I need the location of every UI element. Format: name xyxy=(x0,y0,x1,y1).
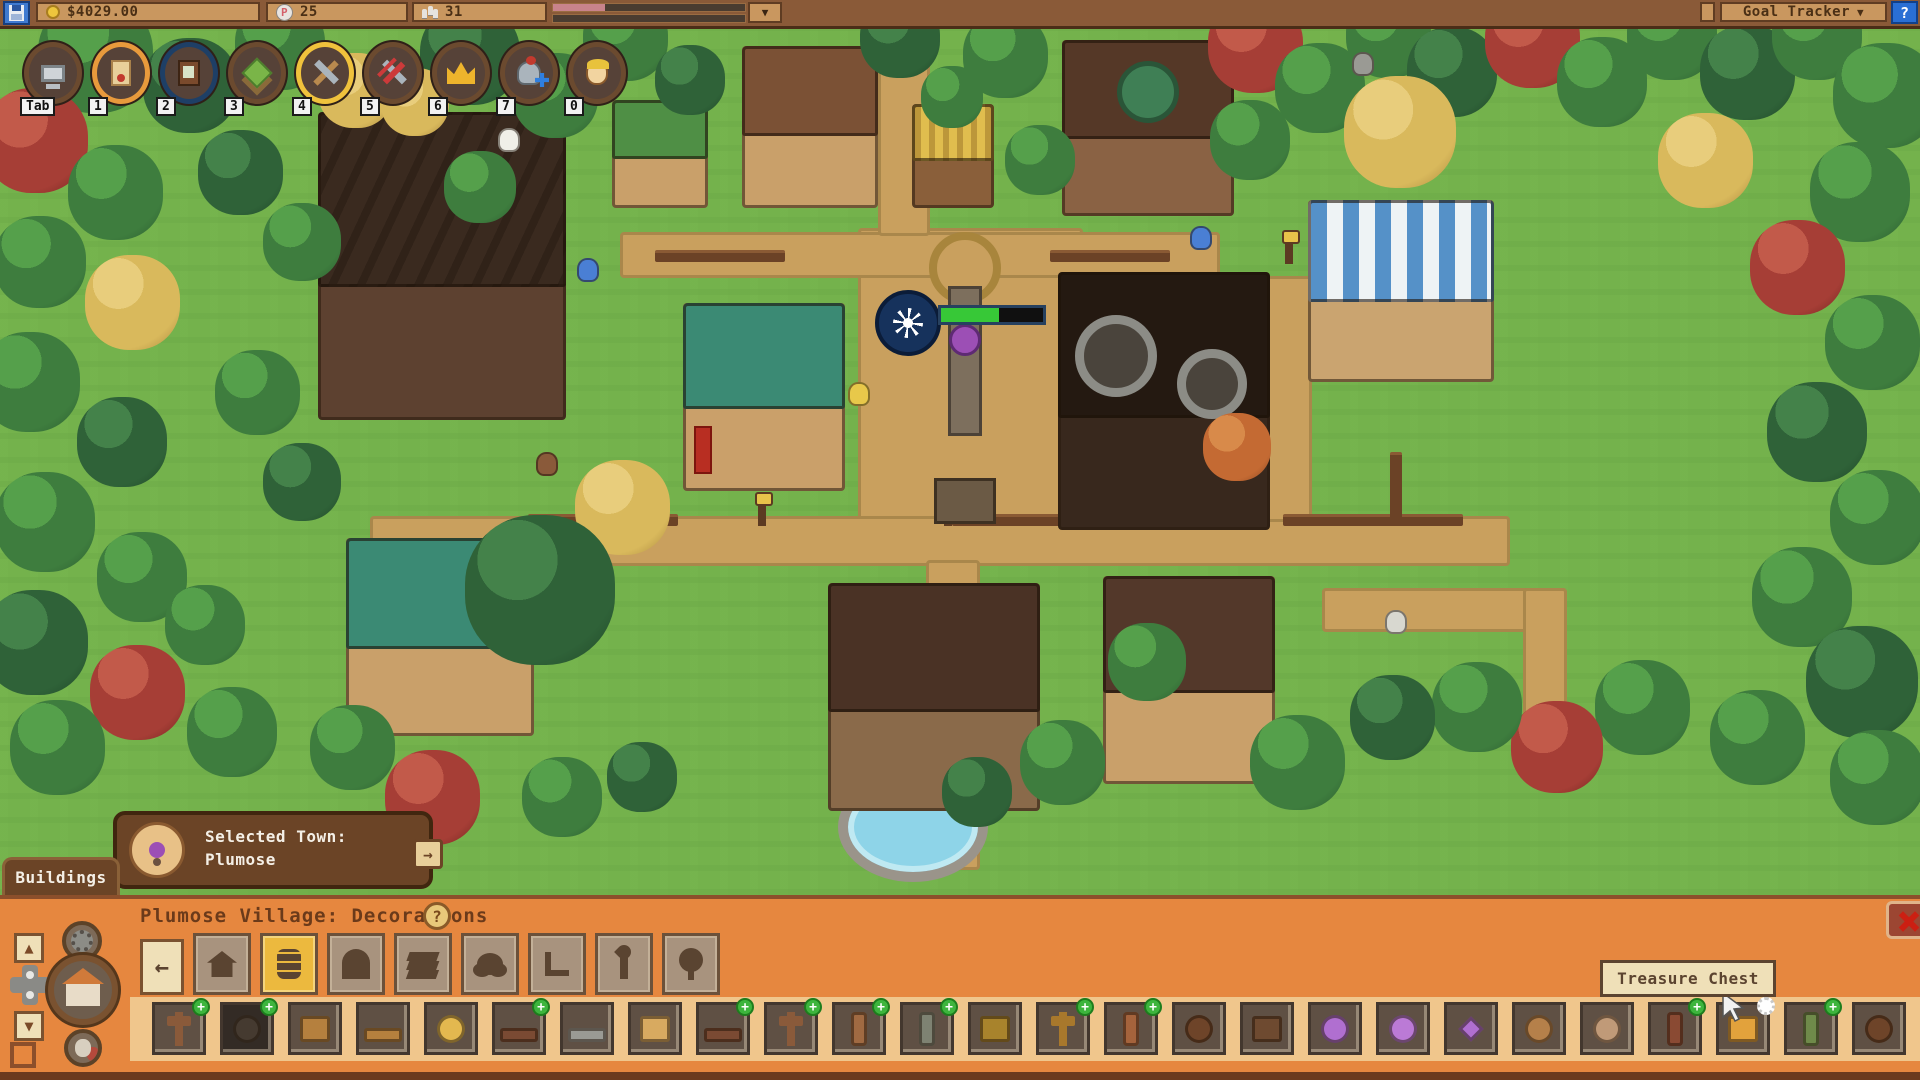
hotbar-slot-1[interactable]: 1 xyxy=(92,42,153,108)
blue-slime-2[interactable] xyxy=(1190,226,1212,250)
signpost-arm-icon xyxy=(787,1012,795,1046)
lantern-shop[interactable] xyxy=(683,303,845,491)
hotbar-slot-4[interactable]: 4 xyxy=(296,42,357,108)
hotbar-slot-5[interactable]: 5 xyxy=(364,42,425,108)
sign-board-icon xyxy=(980,1016,1010,1042)
blue-slime-1[interactable] xyxy=(577,258,599,282)
tools-icon xyxy=(310,58,340,88)
item-slot-wooden-bench[interactable]: + xyxy=(492,1002,546,1055)
crystal-cluster-icon xyxy=(1458,1016,1483,1041)
amethyst-orb-icon xyxy=(1389,1015,1417,1043)
caret-down-icon: ▼ xyxy=(1857,6,1864,19)
tree xyxy=(1005,125,1075,195)
hotbar-slot-0[interactable]: 0 xyxy=(568,42,629,108)
tailor-shop[interactable] xyxy=(742,46,878,208)
plus-badge: + xyxy=(736,998,754,1016)
selected-town-text: Selected Town: Plumose xyxy=(205,825,347,871)
player-marker[interactable] xyxy=(875,290,941,356)
tree xyxy=(921,66,983,128)
town-shrine[interactable] xyxy=(928,232,1002,524)
mood-meter-track-bottom xyxy=(552,14,746,23)
category-next-villagers[interactable] xyxy=(64,1029,102,1067)
hotbar-circle xyxy=(160,42,218,104)
hotbar-circle xyxy=(92,42,150,104)
hotbar-key-label: 5 xyxy=(360,97,380,116)
armor-icon xyxy=(517,61,541,85)
money-value: $4029.00 xyxy=(67,4,138,20)
stone-statue[interactable] xyxy=(1352,52,1374,76)
fence xyxy=(1283,514,1463,526)
tree xyxy=(198,130,283,215)
scroll-up-button[interactable]: ▲ xyxy=(14,933,44,963)
onsen-house-roof xyxy=(828,583,1040,712)
tree-icon xyxy=(679,948,703,972)
tree xyxy=(1750,220,1845,315)
tree xyxy=(1350,675,1435,760)
population-value: 31 xyxy=(445,4,463,20)
wooden-box-icon xyxy=(300,1016,330,1042)
hotbar-key-label: Tab xyxy=(20,97,55,116)
item-slot-mossy-pillar[interactable]: + xyxy=(900,1002,954,1055)
mood-meter xyxy=(552,3,746,24)
hotbar-circle xyxy=(364,42,422,104)
category-current-buildings[interactable] xyxy=(48,955,118,1025)
tall-signpost-icon xyxy=(1059,1012,1067,1046)
tree xyxy=(444,151,516,223)
charm-totem-icon xyxy=(1667,1012,1683,1046)
character-icon xyxy=(586,61,608,85)
population-panel: 31 xyxy=(412,2,547,22)
plus-badge: + xyxy=(872,998,890,1016)
scroll-down-button[interactable]: ▼ xyxy=(14,1011,44,1041)
knapsack-icon xyxy=(640,1016,670,1042)
tree xyxy=(655,45,725,115)
tree xyxy=(310,705,395,790)
plus-badge: + xyxy=(804,998,822,1016)
item-slot-amethyst-egg[interactable] xyxy=(1308,1002,1362,1055)
tree xyxy=(0,216,86,308)
tree xyxy=(607,742,677,812)
mossy-pillar-icon xyxy=(919,1012,935,1046)
item-slot-charm-totem[interactable]: + xyxy=(1648,1002,1702,1055)
journal-icon xyxy=(178,60,200,86)
tab-trees[interactable] xyxy=(662,933,720,995)
lamp-post xyxy=(1285,238,1293,264)
player-crest-icon xyxy=(893,308,923,338)
green-hut[interactable] xyxy=(612,100,708,208)
plus-badge: + xyxy=(1144,998,1162,1016)
tree xyxy=(68,145,163,240)
tree xyxy=(1833,43,1920,148)
item-strip: +++++++++++ xyxy=(130,997,1920,1061)
tree xyxy=(1806,626,1918,738)
tree xyxy=(1825,295,1920,390)
item-slot-skull-stump[interactable]: + xyxy=(1784,1002,1838,1055)
p-token-value: 25 xyxy=(300,4,318,20)
hotbar: Tab12345670 xyxy=(24,42,629,108)
hotbar-circle xyxy=(296,42,354,104)
caret-down-icon: ▼ xyxy=(762,6,769,19)
gear-mill-roof xyxy=(1058,272,1270,418)
plus-badge: + xyxy=(192,998,210,1016)
wooden-bench-icon xyxy=(500,1028,538,1042)
barrel-icon xyxy=(277,949,301,979)
mood-dropdown-button[interactable]: ▼ xyxy=(748,2,782,23)
item-slot-wood-totem[interactable]: + xyxy=(1104,1002,1158,1055)
tree xyxy=(522,757,602,837)
item-slot-treasure-chest[interactable] xyxy=(1716,1002,1770,1055)
wood-totem-icon xyxy=(1123,1012,1139,1046)
goal-tracker-button[interactable]: Goal Tracker ▼ xyxy=(1720,2,1887,22)
town-hall[interactable] xyxy=(1062,40,1234,216)
player-health-bar xyxy=(938,305,1046,325)
plus-badge: + xyxy=(532,998,550,1016)
tree xyxy=(942,757,1012,827)
item-slot-beehive[interactable] xyxy=(1172,1002,1226,1055)
item-slot-log-bench[interactable]: + xyxy=(696,1002,750,1055)
gem-basket-icon xyxy=(1525,1015,1553,1043)
decorations-panel: Plumose Village: Decorations ? ▲ ▼ ← +++… xyxy=(0,895,1920,1080)
item-slot-wooden-box[interactable] xyxy=(288,1002,342,1055)
monk-villager[interactable] xyxy=(1385,610,1407,634)
hotbar-key-label: 1 xyxy=(88,97,108,116)
hotbar-key-label: 6 xyxy=(428,97,448,116)
item-slot-banded-chest[interactable] xyxy=(1240,1002,1294,1055)
plus-badge: + xyxy=(1824,998,1842,1016)
chicken[interactable] xyxy=(498,128,520,152)
gear-mill[interactable] xyxy=(1058,272,1270,530)
tree xyxy=(1767,382,1867,482)
tab-buildings[interactable]: Buildings xyxy=(2,857,120,895)
close-button[interactable] xyxy=(1886,901,1920,939)
log-bench-icon xyxy=(704,1028,742,1042)
grand-lodge[interactable] xyxy=(318,112,566,420)
tree xyxy=(465,515,615,665)
demolish-icon xyxy=(378,58,408,88)
bush-icon xyxy=(477,953,503,975)
coin-icon xyxy=(46,5,60,19)
hotbar-slot-3[interactable]: 3 xyxy=(228,42,289,108)
hotbar-slot-tab[interactable]: Tab xyxy=(24,42,85,108)
tree xyxy=(1595,660,1690,755)
item-slot-purple-cushion[interactable] xyxy=(1580,1002,1634,1055)
tree xyxy=(0,472,95,572)
fence xyxy=(1390,452,1402,522)
hotbar-circle xyxy=(24,42,82,104)
chair-icon xyxy=(545,952,569,976)
hotbar-key-label: 3 xyxy=(224,97,244,116)
tree xyxy=(85,255,180,350)
tree xyxy=(1830,470,1920,565)
house-icon xyxy=(66,984,100,1006)
mood-meter-fill xyxy=(553,4,605,11)
acorn-hive-icon xyxy=(1865,1015,1893,1043)
hay-bale-icon xyxy=(437,1015,465,1043)
tree xyxy=(1710,690,1805,785)
shrine-base xyxy=(934,478,996,524)
scroll-icon xyxy=(111,60,131,86)
awning-shop-roof xyxy=(1308,200,1494,302)
purple-cushion-icon xyxy=(1593,1015,1621,1043)
plus-badge: + xyxy=(1076,998,1094,1016)
tree xyxy=(215,350,300,435)
torch-icon xyxy=(620,957,628,979)
back-button[interactable]: ← xyxy=(140,939,184,995)
panel-help-button[interactable]: ? xyxy=(423,902,451,930)
tab-furniture[interactable] xyxy=(528,933,586,995)
game-screen: Tab12345670 Selected Town: Plumose → $40… xyxy=(0,0,1920,1080)
item-slot-sign-board[interactable] xyxy=(968,1002,1022,1055)
tree xyxy=(1658,113,1753,208)
tree xyxy=(1108,623,1186,701)
shrine-flower xyxy=(949,324,981,356)
hotbar-key-label: 0 xyxy=(564,97,584,116)
gear-badge xyxy=(1757,997,1775,1015)
tree xyxy=(165,585,245,665)
p-token-icon: P xyxy=(276,4,293,21)
buildings-tab-label: Buildings xyxy=(15,868,106,887)
tree xyxy=(1830,730,1920,825)
tree xyxy=(1344,76,1456,188)
villager-blond[interactable] xyxy=(848,382,870,406)
tree xyxy=(10,700,105,795)
hotbar-key-label: 2 xyxy=(156,97,176,116)
tree xyxy=(1210,100,1290,180)
hotbar-slot-6[interactable]: 6 xyxy=(432,42,493,108)
tailor-shop-roof xyxy=(742,46,878,136)
hotbar-circle xyxy=(568,42,626,104)
mouse-cursor xyxy=(1721,997,1747,1025)
gear-icon xyxy=(71,930,93,952)
tree xyxy=(1203,413,1271,481)
town-flower-icon xyxy=(129,822,185,878)
plus-badge: + xyxy=(260,998,278,1016)
stone-well-icon xyxy=(233,1015,261,1043)
population-icon xyxy=(422,6,438,18)
item-slot-stone-well[interactable]: + xyxy=(220,1002,274,1055)
item-slot-stone-bench[interactable] xyxy=(560,1002,614,1055)
tab-gates[interactable] xyxy=(327,933,385,995)
arch-icon xyxy=(342,949,370,979)
hotbar-key-label: 4 xyxy=(292,97,312,116)
arrow-up-icon: ▲ xyxy=(24,939,33,957)
hotbar-circle xyxy=(432,42,490,104)
plus-badge: + xyxy=(1688,998,1706,1016)
mood-meter-track-top xyxy=(552,3,746,12)
help-button[interactable]: ? xyxy=(1891,1,1918,24)
tree xyxy=(1020,720,1105,805)
tree xyxy=(263,443,341,521)
item-slot-acorn-hive[interactable] xyxy=(1852,1002,1906,1055)
item-slot-wooden-shelf[interactable] xyxy=(356,1002,410,1055)
question-icon: ? xyxy=(1900,4,1909,22)
tree xyxy=(1511,701,1603,793)
flower-statue-icon xyxy=(149,842,165,858)
tree xyxy=(0,332,80,432)
tree xyxy=(1432,662,1522,752)
item-slot-hay-bale[interactable] xyxy=(424,1002,478,1055)
layers-icon xyxy=(406,952,439,961)
p-token-panel: P 25 xyxy=(266,2,408,22)
tree xyxy=(77,397,167,487)
hotbar-circle xyxy=(228,42,286,104)
hotbar-key-label: 7 xyxy=(496,97,516,116)
tree xyxy=(187,687,277,777)
plus-badge: + xyxy=(940,998,958,1016)
tree xyxy=(90,645,185,740)
villager-icon xyxy=(75,1039,91,1057)
wood-signpost-icon xyxy=(175,1012,183,1046)
crown-icon xyxy=(447,62,475,84)
item-tooltip: Treasure Chest xyxy=(1600,960,1776,997)
money-panel: $4029.00 xyxy=(36,2,260,22)
top-bar: $4029.00 P 25 31 ▼ Goal Tracker ▼ ? xyxy=(0,0,1920,29)
item-slot-log-stump[interactable]: + xyxy=(832,1002,886,1055)
house-icon xyxy=(207,951,237,977)
item-slot-gem-basket[interactable] xyxy=(1512,1002,1566,1055)
amethyst-egg-icon xyxy=(1321,1015,1349,1043)
selected-town-label: Selected Town: xyxy=(205,825,347,848)
category-tab-bar: ← xyxy=(140,933,720,995)
wooden-shelf-icon xyxy=(364,1028,402,1042)
arrow-right-icon: → xyxy=(423,845,433,864)
item-slot-amethyst-orb[interactable] xyxy=(1376,1002,1430,1055)
villager-brown[interactable] xyxy=(536,452,558,476)
banded-chest-icon xyxy=(1252,1016,1282,1042)
floppy-disk-icon xyxy=(9,5,24,21)
terrain-icon xyxy=(241,57,272,88)
item-slot-tall-signpost[interactable]: + xyxy=(1036,1002,1090,1055)
awning-shop[interactable] xyxy=(1308,200,1494,382)
selected-town-name: Plumose xyxy=(205,848,347,871)
tab-decorations[interactable] xyxy=(260,933,318,995)
fence xyxy=(1050,250,1170,262)
hotbar-slot-7[interactable]: 7 xyxy=(500,42,561,108)
log-stump-icon xyxy=(851,1012,867,1046)
hotbar-circle xyxy=(500,42,558,104)
tab-bushes[interactable] xyxy=(461,933,519,995)
tab-houses[interactable] xyxy=(193,933,251,995)
game-map[interactable]: Tab12345670 Selected Town: Plumose → xyxy=(0,26,1920,895)
item-slot-crystal-cluster[interactable] xyxy=(1444,1002,1498,1055)
top-bar-divider xyxy=(1700,2,1715,22)
question-icon: ? xyxy=(432,907,442,926)
goal-tracker-label: Goal Tracker xyxy=(1743,4,1850,20)
lamp-post xyxy=(758,500,766,526)
selected-town-panel: Selected Town: Plumose → xyxy=(113,811,433,889)
grand-lodge-roof xyxy=(318,112,566,287)
save-button[interactable] xyxy=(3,1,30,25)
hotbar-slot-2[interactable]: 2 xyxy=(160,42,221,108)
tree xyxy=(263,203,341,281)
fence xyxy=(655,250,785,262)
item-slot-wood-signpost[interactable]: + xyxy=(152,1002,206,1055)
tree xyxy=(1250,715,1345,810)
stone-bench-icon xyxy=(568,1028,606,1042)
beehive-icon xyxy=(1185,1015,1213,1043)
dpad-control[interactable] xyxy=(10,965,50,1005)
lantern-shop-roof xyxy=(683,303,845,409)
back-arrow-icon: ← xyxy=(155,953,169,981)
skull-stump-icon xyxy=(1803,1012,1819,1046)
player-health-fill xyxy=(941,308,999,322)
item-slot-knapsack[interactable] xyxy=(628,1002,682,1055)
tab-torches[interactable] xyxy=(595,933,653,995)
next-town-button[interactable]: → xyxy=(413,839,443,869)
tree xyxy=(0,590,88,695)
arrow-down-icon: ▼ xyxy=(24,1017,33,1035)
computer-icon xyxy=(41,65,65,82)
item-slot-signpost-arm[interactable]: + xyxy=(764,1002,818,1055)
tab-flooring[interactable] xyxy=(394,933,452,995)
panel-corner-ornament xyxy=(10,1042,36,1068)
